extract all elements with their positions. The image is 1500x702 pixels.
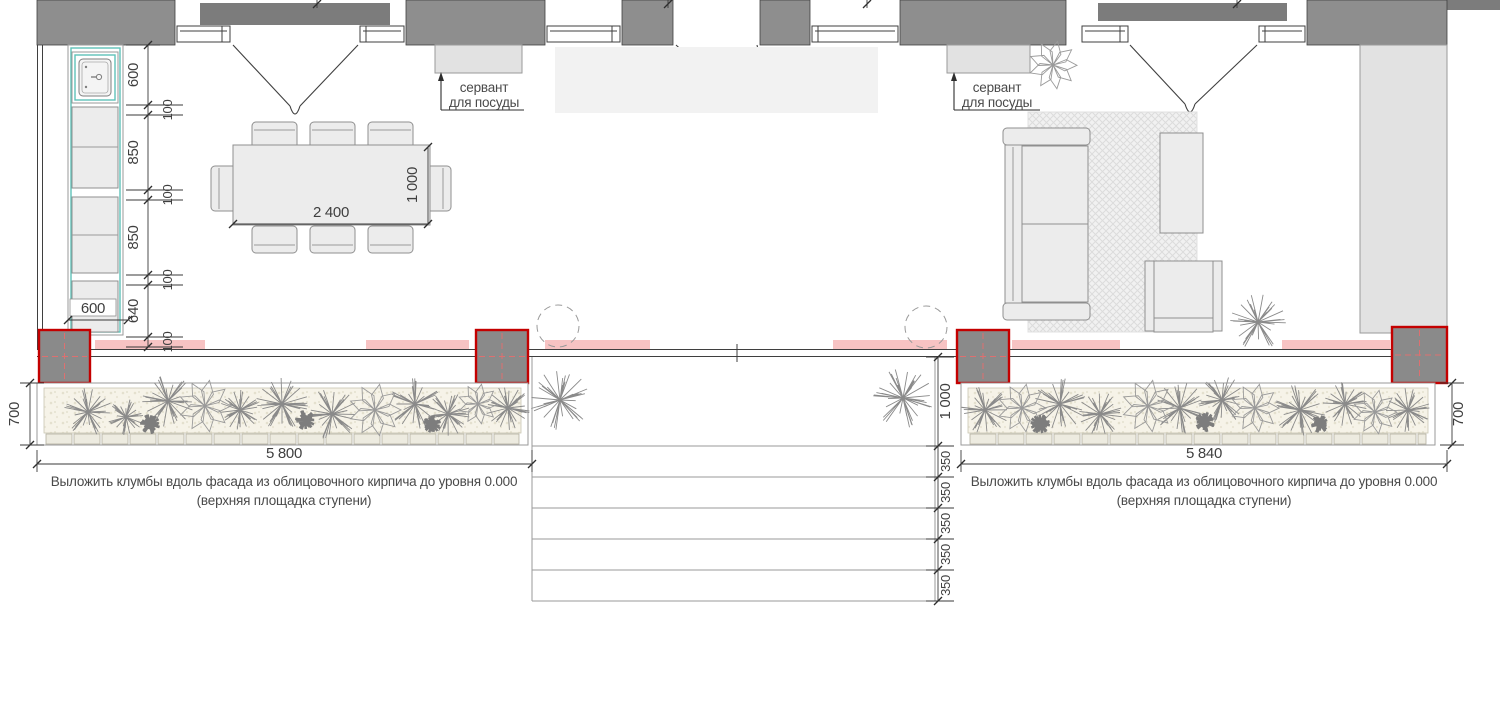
notes: Выложить клумбы вдоль фасада из облицово… <box>51 474 1438 508</box>
sofa <box>1003 128 1090 320</box>
dim-bed-left-depth: 700 <box>6 402 23 426</box>
sideboard-left: сервант для посуды <box>435 45 524 110</box>
dim-bed-right-depth: 700 <box>1450 402 1467 426</box>
counter-cabinets <box>72 107 118 332</box>
dim-step-tread: 350 <box>938 513 953 534</box>
dim-step-tread: 350 <box>938 451 953 472</box>
dim-step-tread: 350 <box>938 482 953 503</box>
column-axes <box>42 330 1444 380</box>
entrance-mat <box>555 47 878 113</box>
window-icon <box>547 26 620 42</box>
radiator-strip <box>1282 340 1390 349</box>
double-door-left-icon <box>233 45 358 114</box>
dim-counter-offset: 100 <box>160 332 175 353</box>
dim-counter-offset: 100 <box>160 270 175 291</box>
dim-step-tread: 350 <box>938 544 953 565</box>
radiator-strip <box>545 340 650 349</box>
sideboard-right-label2: для посуды <box>962 95 1032 110</box>
entry-steps <box>532 357 935 601</box>
flowerbed-note-right: Выложить клумбы вдоль фасада из облицово… <box>971 474 1438 489</box>
dim-counter-seg: 640 <box>125 299 142 323</box>
dim-bed-left-length: 5 800 <box>266 445 302 462</box>
entry-canopy-left <box>200 3 390 25</box>
plant-icon <box>1230 295 1286 347</box>
dim-counter-seg: 600 <box>125 63 142 87</box>
sideboard-right: сервант для посуды <box>947 45 1040 110</box>
entry-canopy-right <box>1098 3 1287 21</box>
table-length-dim: 2 400 <box>313 204 349 221</box>
plant-icon <box>531 371 587 430</box>
dim-counter-offset: 100 <box>160 100 175 121</box>
floor-plan: 600 2 400 1 000 сервант для посуды сер <box>0 0 1500 702</box>
window-sills <box>177 26 1305 42</box>
counter-width-dim: 600 <box>81 300 105 317</box>
kitchen-counter: 600 <box>68 45 128 335</box>
partition-cabinet <box>1360 45 1447 333</box>
dim-bed-right-length: 5 840 <box>1186 445 1222 462</box>
window-icon <box>812 26 898 42</box>
floor-plan-drawing: 600 2 400 1 000 сервант для посуды сер <box>0 0 1500 702</box>
flowerbed-note-left: Выложить клумбы вдоль фасада из облицово… <box>51 474 518 489</box>
facade <box>37 305 1447 383</box>
coffee-table <box>1160 133 1203 233</box>
dim-step-tread: 350 <box>938 575 953 596</box>
dim-counter-seg: 850 <box>125 225 142 249</box>
sink-icon <box>72 52 118 103</box>
window-icon <box>1259 26 1305 42</box>
dim-counter-seg: 850 <box>125 140 142 164</box>
table-width-dim: 1 000 <box>404 167 421 203</box>
radiator-strip <box>366 340 469 349</box>
dim-counter-offset: 100 <box>160 185 175 206</box>
radiator-strip <box>1012 340 1120 349</box>
armchair <box>1145 261 1222 332</box>
double-door-right-icon <box>1130 45 1257 112</box>
window-icon <box>1082 26 1128 42</box>
dim-steps-landing: 1 000 <box>937 383 954 419</box>
plant-icon <box>873 370 931 428</box>
flowerbed-note-right2: (верхняя площадка ступени) <box>1117 493 1292 508</box>
plant-icon <box>1030 41 1077 88</box>
sideboard-left-label2: для посуды <box>449 95 519 110</box>
window-icon <box>360 26 404 42</box>
sideboard-left-label: сервант <box>460 80 509 95</box>
living-area <box>1003 112 1222 332</box>
window-icon <box>177 26 230 42</box>
brick-edging <box>970 434 1426 444</box>
sideboard-right-label: сервант <box>973 80 1022 95</box>
dining-set: 2 400 1 000 <box>211 122 451 253</box>
flowerbed-note-left2: (верхняя площадка ступени) <box>197 493 372 508</box>
